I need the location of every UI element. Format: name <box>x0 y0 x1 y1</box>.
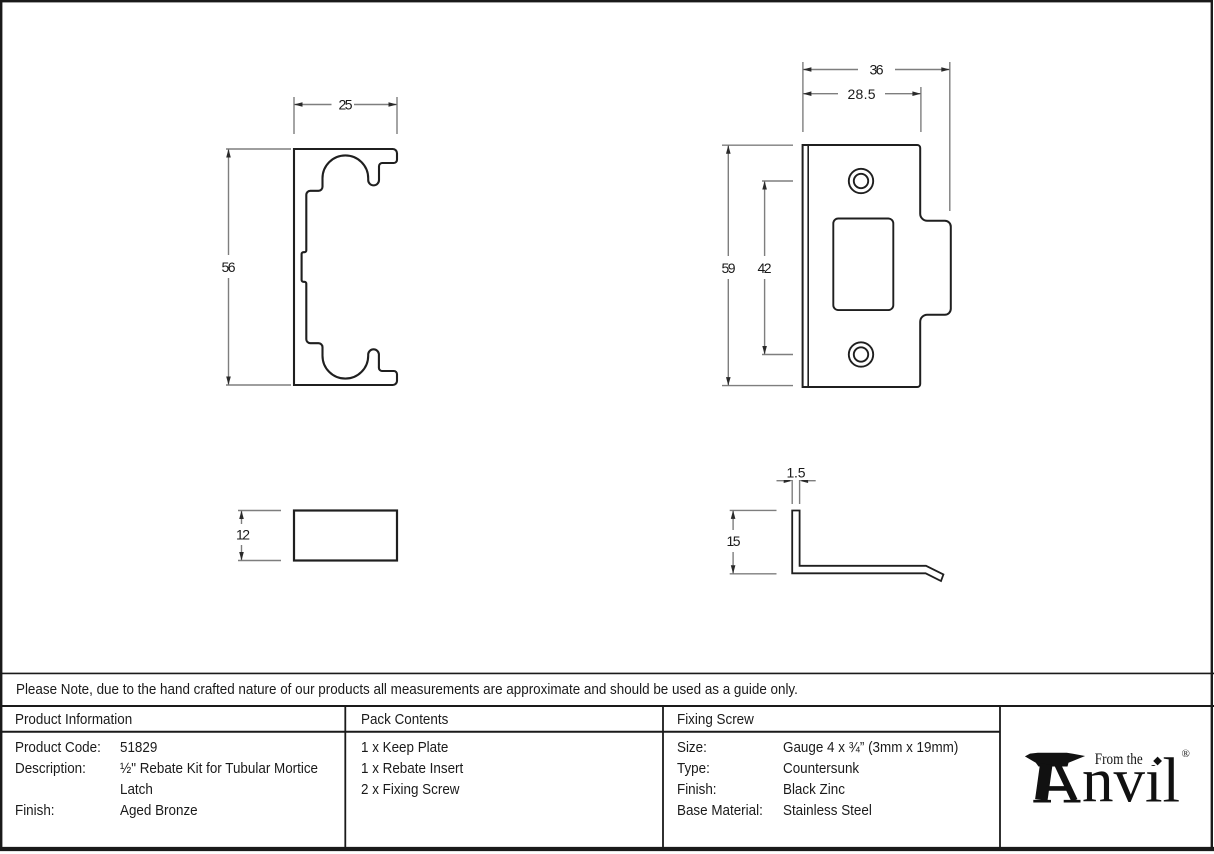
svg-text:36: 36 <box>870 62 884 78</box>
svg-text:42: 42 <box>758 260 772 276</box>
svg-text:From the: From the <box>1095 751 1143 768</box>
svg-text:59: 59 <box>722 260 736 276</box>
svg-text:56: 56 <box>222 259 236 275</box>
svg-text:25: 25 <box>339 97 353 113</box>
svg-text:15: 15 <box>727 533 741 549</box>
svg-text:1.5: 1.5 <box>787 465 806 481</box>
svg-text:®: ® <box>1182 748 1190 760</box>
svg-text:12: 12 <box>236 527 250 543</box>
svg-text:28.5: 28.5 <box>848 86 876 102</box>
